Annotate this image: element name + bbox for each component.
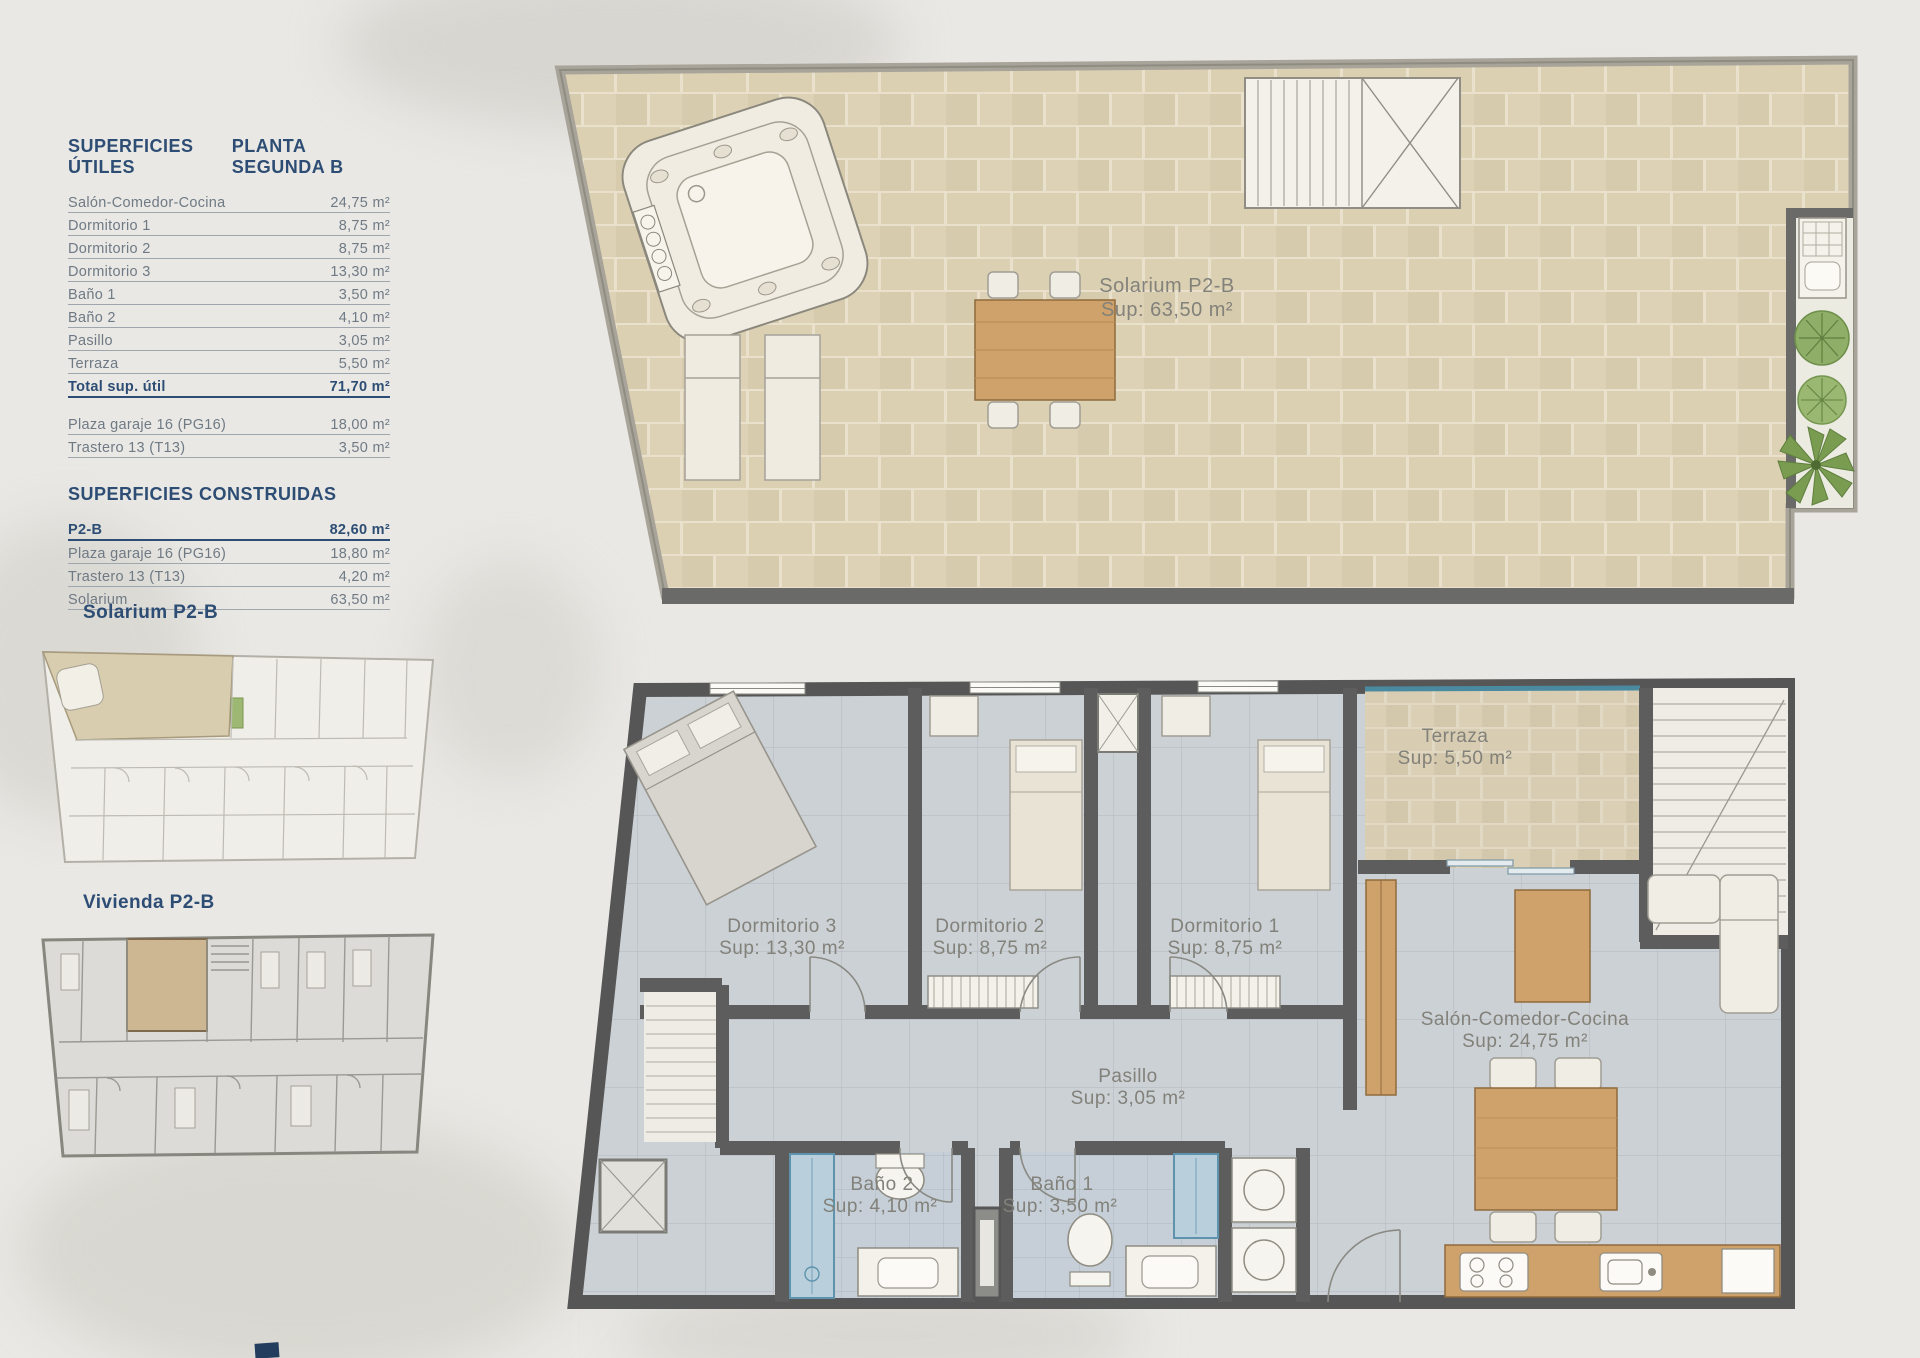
solarium-thumb-heading: Solarium P2-B	[83, 602, 218, 624]
plan-title: PLANTA SEGUNDA B	[232, 136, 390, 178]
table-row: Baño 24,10 m²	[68, 305, 390, 328]
row-value: 82,60 m²	[330, 522, 390, 538]
dorm2-label: Dormitorio 2	[935, 916, 1044, 937]
solarium-sup: Sup: 63,50 m²	[1101, 299, 1233, 321]
pasillo-label: Pasillo	[1098, 1066, 1157, 1087]
palm-plant	[1778, 427, 1854, 505]
row-value: 8,75 m²	[339, 218, 390, 234]
row-value: 3,50 m²	[339, 287, 390, 303]
row-value: 18,00 m²	[330, 417, 390, 433]
vivienda-plan: Dormitorio 3 Sup: 13,30 m² Dormitorio 2 …	[570, 680, 1800, 1310]
surface-tables: SUPERFICIES ÚTILES PLANTA SEGUNDA B Saló…	[68, 136, 390, 610]
terraza-sup: Sup: 5,50 m²	[1398, 748, 1513, 769]
terraza-label: Terraza	[1422, 726, 1489, 747]
kitchen-counter	[1445, 1245, 1780, 1297]
utiles-title: SUPERFICIES ÚTILES	[68, 136, 232, 178]
row-value: 4,10 m²	[339, 310, 390, 326]
row-value: 8,75 m²	[339, 241, 390, 257]
dorm1-sup: Sup: 8,75 m²	[1168, 938, 1283, 959]
table-row: Dormitorio 313,30 m²	[68, 259, 390, 282]
row-label: Dormitorio 1	[68, 218, 151, 234]
single-bed	[1010, 740, 1082, 890]
table-row: Pasillo3,05 m²	[68, 328, 390, 351]
outdoor-sink	[1799, 218, 1846, 298]
construidas-rows: P2-B82,60 m² Plaza garaje 16 (PG16)18,80…	[68, 517, 390, 610]
service-shaft-inner	[980, 1220, 994, 1286]
row-value: 71,70 m²	[330, 379, 390, 395]
row-label: Baño 2	[68, 310, 116, 326]
row-value: 63,50 m²	[330, 592, 390, 608]
row-label: Total sup. útil	[68, 379, 166, 395]
kitchen-sink	[1600, 1253, 1662, 1291]
single-bed	[1258, 740, 1330, 890]
dorm1-label: Dormitorio 1	[1170, 916, 1279, 937]
thumb-jacuzzi	[55, 662, 105, 712]
floorplan-sheet: SUPERFICIES ÚTILES PLANTA SEGUNDA B Saló…	[0, 0, 1920, 1358]
row-label: Dormitorio 3	[68, 264, 151, 280]
bano1-label: Baño 1	[1030, 1174, 1093, 1195]
row-label: P2-B	[68, 522, 102, 538]
row-label: Plaza garaje 16 (PG16)	[68, 546, 226, 562]
bathroom-sink	[858, 1248, 958, 1296]
row-label: Dormitorio 2	[68, 241, 151, 257]
row-value: 18,80 m²	[330, 546, 390, 562]
bano2-label: Baño 2	[850, 1174, 913, 1195]
bano2-sup: Sup: 4,10 m²	[823, 1196, 938, 1217]
fridge	[1722, 1249, 1774, 1293]
dorm3-sup: Sup: 13,30 m²	[719, 938, 845, 959]
solarium-label: Solarium P2-B	[1099, 275, 1234, 297]
pasillo-sup: Sup: 3,05 m²	[1071, 1088, 1186, 1109]
row-label: Trastero 13 (T13)	[68, 569, 185, 585]
table-row: Salón-Comedor-Cocina24,75 m²	[68, 190, 390, 213]
nightstand	[930, 696, 978, 736]
row-value: 4,20 m²	[339, 569, 390, 585]
row-label: Baño 1	[68, 287, 116, 303]
dryer	[1232, 1228, 1296, 1292]
table-row: Baño 13,50 m²	[68, 282, 390, 305]
sun-lounger	[765, 335, 820, 480]
table-row-total: Total sup. útil71,70 m²	[68, 374, 390, 398]
solarium-plan: Solarium P2-B Sup: 63,50 m²	[550, 60, 1860, 620]
table-row: Plaza garaje 16 (PG16)18,80 m²	[68, 541, 390, 564]
row-label: Terraza	[68, 356, 118, 372]
table-title-row: SUPERFICIES ÚTILES PLANTA SEGUNDA B	[68, 136, 390, 178]
ink-blot	[255, 1342, 280, 1358]
table-row: Trastero 13 (T13)4,20 m²	[68, 564, 390, 587]
row-value: 3,05 m²	[339, 333, 390, 349]
roof-stair-structure	[1245, 78, 1460, 208]
shrub	[1795, 311, 1849, 365]
thumbnail-vivienda-plan	[35, 930, 445, 1162]
thumbnail-solarium-plan	[35, 640, 445, 872]
row-label: Salón-Comedor-Cocina	[68, 195, 226, 211]
washer	[1232, 1158, 1296, 1222]
row-label: Plaza garaje 16 (PG16)	[68, 417, 226, 433]
table-row: Trastero 13 (T13)3,50 m²	[68, 435, 390, 458]
table-row: Plaza garaje 16 (PG16)18,00 m²	[68, 412, 390, 435]
table-row: Terraza5,50 m²	[68, 351, 390, 374]
table-row: Dormitorio 28,75 m²	[68, 236, 390, 259]
cooktop	[1460, 1253, 1528, 1291]
dorm3-label: Dormitorio 3	[727, 916, 836, 937]
glass-balustrade	[1365, 688, 1640, 689]
salon-label: Salón-Comedor-Cocina	[1421, 1009, 1630, 1030]
shower	[1174, 1154, 1218, 1238]
thumb-planter	[231, 698, 243, 728]
sun-lounger	[685, 335, 740, 480]
row-value: 13,30 m²	[330, 264, 390, 280]
salon-sup: Sup: 24,75 m²	[1462, 1031, 1588, 1052]
nightstand	[1162, 696, 1210, 736]
wardrobe	[1170, 976, 1280, 1008]
row-value: 24,75 m²	[330, 195, 390, 211]
table-row-p2b: P2-B82,60 m²	[68, 517, 390, 541]
toilet	[1068, 1214, 1112, 1286]
row-label: Trastero 13 (T13)	[68, 440, 185, 456]
bano1-sup: Sup: 3,50 m²	[1003, 1196, 1118, 1217]
elevator-shaft	[600, 1160, 666, 1232]
shrub	[1798, 376, 1846, 424]
shower	[790, 1154, 834, 1298]
utiles-rows: Salón-Comedor-Cocina24,75 m² Dormitorio …	[68, 190, 390, 458]
table-row: Dormitorio 18,75 m²	[68, 213, 390, 236]
vivienda-thumb-heading: Vivienda P2-B	[83, 892, 215, 914]
row-label: Pasillo	[68, 333, 113, 349]
bathroom-sink	[1126, 1246, 1216, 1296]
kitchen-island	[1515, 890, 1590, 1002]
row-value: 3,50 m²	[339, 440, 390, 456]
communal-stair	[644, 992, 716, 1142]
parapet-wall	[662, 588, 1794, 604]
duct-shaft	[1098, 694, 1138, 752]
row-value: 5,50 m²	[339, 356, 390, 372]
terraza-floor	[1365, 688, 1640, 868]
dorm2-sup: Sup: 8,75 m²	[933, 938, 1048, 959]
construidas-title: SUPERFICIES CONSTRUIDAS	[68, 484, 390, 505]
highlighted-vivienda-unit	[127, 939, 207, 1031]
